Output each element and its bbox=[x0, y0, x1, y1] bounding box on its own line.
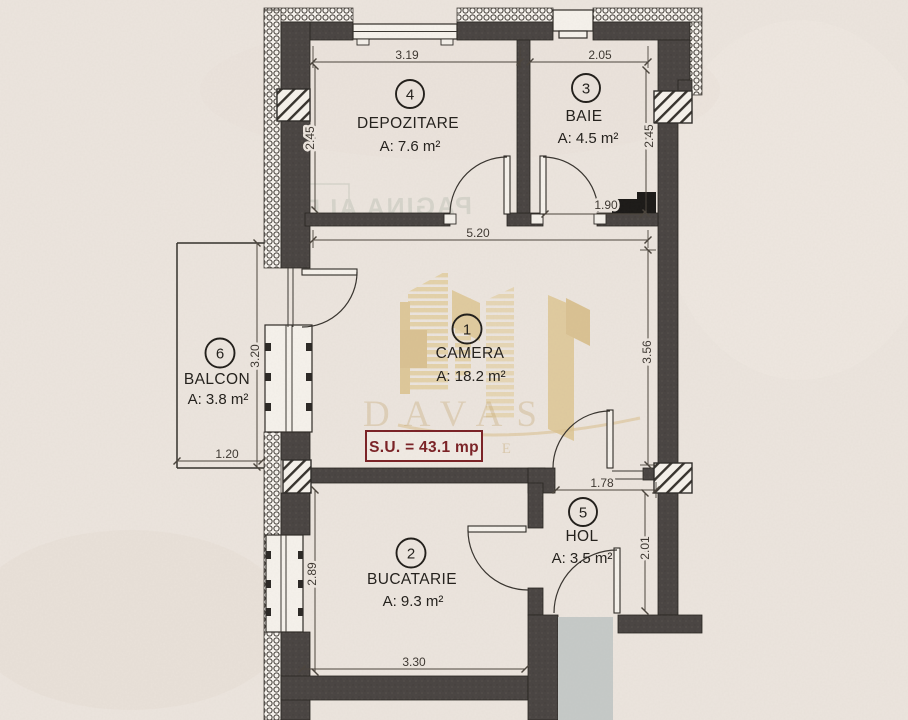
paper-grain-overlay bbox=[0, 0, 908, 720]
floor-plan-svg: PAGINA ALBA DAVAS R E bbox=[0, 0, 908, 720]
floor-plan-scan: PAGINA ALBA DAVAS R E bbox=[0, 0, 908, 720]
